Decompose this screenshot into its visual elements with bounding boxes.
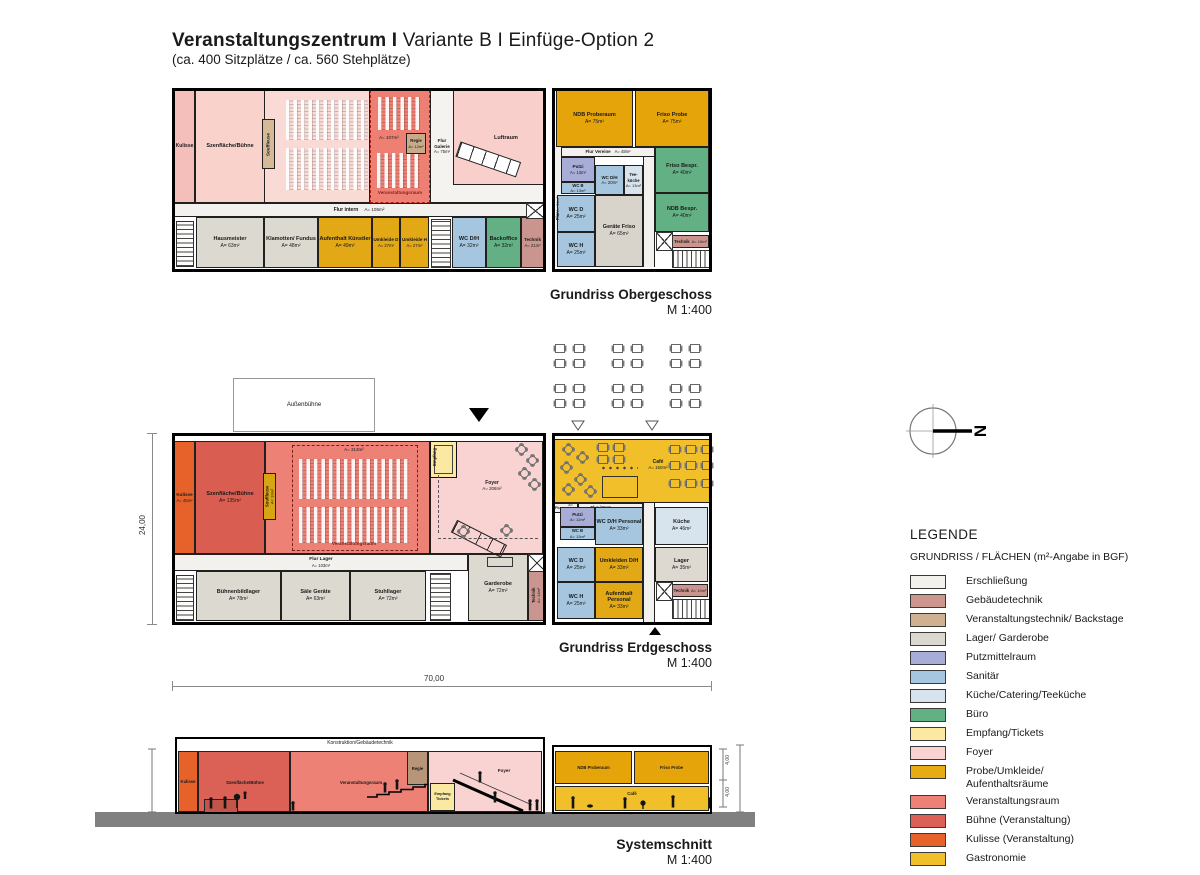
- legend-item-label: Gastronomie: [966, 852, 1026, 865]
- legend: LEGENDE GRUNDRISS / FLÄCHEN (m²-Angabe i…: [910, 527, 1180, 871]
- legend-item: Sanitär: [910, 670, 1180, 684]
- legend-item: Probe/Umkleide/ Aufenthaltsräume: [910, 765, 1180, 790]
- room-area: A= 12m²: [408, 144, 423, 149]
- og-vraum-area: A= 107m²: [372, 135, 406, 141]
- outdoor-table-icon: [555, 399, 565, 408]
- eg-room-kueche: Küche A= 46m²: [655, 507, 708, 545]
- cafe-table-icon: [702, 479, 712, 488]
- room-area: A= 75m²: [434, 149, 450, 154]
- schnitt-caption: Systemschnitt: [462, 836, 712, 852]
- room-label: Klamotten/ Fundus: [266, 236, 316, 243]
- og-annex-stair-icon: [672, 250, 711, 268]
- legend-item-label: Bühne (Veranstaltung): [966, 814, 1071, 827]
- room-label: WC H: [569, 243, 584, 250]
- outdoor-table-icon: [671, 384, 681, 393]
- room-label: Aufenthalt Personal: [596, 591, 642, 605]
- room-label: Flur Vereine: [585, 149, 610, 155]
- eg-room-garderobe: Garderobe A= 72m²: [468, 554, 528, 621]
- legend-item: Gebäudetechnik: [910, 594, 1180, 608]
- legend-swatch: [910, 814, 946, 828]
- room-area: A= 32m²: [494, 243, 513, 249]
- room-label: WC D: [569, 558, 584, 565]
- og-room-wc-h: WC H A= 25m²: [557, 232, 595, 267]
- room-area: A= 25m²: [566, 250, 585, 256]
- og-room-wc-b: WC B A= 13m²: [561, 182, 595, 194]
- outdoor-table-icon: [555, 359, 565, 368]
- og-annex-corridor-vertical: [643, 157, 655, 267]
- room-label: WC D/H: [459, 236, 479, 243]
- og-seat-rows-upper: [286, 100, 368, 140]
- room-label: Geräte Friso: [603, 224, 635, 231]
- legend-swatch: [910, 727, 946, 741]
- legend-swatch: [910, 833, 946, 847]
- room-area: A= 313m²: [344, 447, 364, 453]
- og-vraum-seats-lower: [377, 153, 420, 188]
- legend-items: ErschließungGebäudetechnikVeranstaltungs…: [910, 575, 1180, 866]
- legend-item-label: Probe/Umkleide/ Aufenthaltsräume: [966, 765, 1126, 790]
- room-area: A= 12m²: [570, 517, 585, 522]
- garderobe-counter-outline: [487, 557, 513, 567]
- round-table-icon: [502, 526, 511, 535]
- legend-item: Kulisse (Veranstaltung): [910, 833, 1180, 847]
- room-area: A= 27m²: [378, 243, 394, 248]
- og-room-souffleuse: Souffleuse: [262, 119, 275, 169]
- og-room-regie: Regie A= 12m²: [406, 133, 426, 154]
- og-room-backoffice: Backoffice A= 32m²: [486, 217, 521, 268]
- dim-line-height: [152, 433, 153, 625]
- room-label: Garderobe: [484, 581, 512, 588]
- og-room-ndb-bespr: NDB Bespr. A= 40m²: [655, 193, 709, 232]
- og-seat-rows-lower: [286, 148, 368, 190]
- eg-vraum-dashed-boundary: [292, 445, 418, 551]
- section-linework: [95, 735, 755, 830]
- room-label: Friso Probe: [657, 112, 688, 119]
- room-label: NDB Bespr.: [667, 206, 697, 213]
- og-room-friso-probe: Friso Probe A= 75m²: [635, 90, 709, 147]
- legend-swatch: [910, 594, 946, 608]
- og-annex-block: Flur A= 34m² NDB Proberaum A= 75m² Friso…: [552, 88, 712, 272]
- room-area: A= 40m²: [672, 170, 691, 176]
- room-area: A= 40m²: [672, 213, 691, 219]
- legend-item: Küche/Catering/Teeküche: [910, 689, 1180, 703]
- cafe-round-table-icon: [564, 445, 573, 454]
- room-label: Veranstaltungsraum: [378, 190, 422, 196]
- title-bold: Veranstaltungszentrum I: [172, 30, 397, 51]
- room-area: A= 65m²: [609, 231, 628, 237]
- cafe-table-icon: [614, 443, 624, 452]
- room-label: Flur Galerie: [430, 138, 454, 149]
- cafe-table-icon: [598, 443, 608, 452]
- room-label: Souffleuse: [266, 133, 272, 156]
- room-area: A= 25m²: [566, 601, 585, 607]
- architectural-drawing-sheet: Veranstaltungszentrum I Variante B I Ein…: [0, 0, 1200, 875]
- og-flur-vertical-label: Flur A= 34m²: [553, 184, 562, 232]
- og-room-kulisse: Kulisse: [174, 90, 195, 203]
- foyer-stair-flight: [453, 780, 523, 811]
- room-area: A= 10m²: [691, 588, 706, 593]
- page-title: Veranstaltungszentrum I Variante B I Ein…: [172, 30, 654, 52]
- room-label: Szenfläche/Bühne: [206, 143, 253, 150]
- title-regular: Variante B I Einfüge-Option 2: [397, 30, 654, 51]
- eg-room-aufenthalt-personal: Aufenthalt Personal A= 33m²: [595, 582, 643, 619]
- triangle-marker-icon: [468, 407, 490, 423]
- cafe-label: Café A= 150m²: [638, 459, 678, 471]
- room-area: A= 13m²: [570, 188, 585, 193]
- foyer-dashed-line-h: [438, 538, 538, 539]
- cafe-round-table-icon: [562, 463, 571, 472]
- eg-room-kulisse: Kulisse A= 45m²: [174, 441, 195, 554]
- eg-room-lager: Lager A= 35m²: [655, 547, 708, 582]
- legend-swatch: [910, 670, 946, 684]
- eg-caption: Grundriss Erdgeschoss: [462, 640, 712, 655]
- legend-item-label: Foyer: [966, 746, 993, 759]
- room-area: A= 48m²: [615, 149, 631, 154]
- legend-item: Veranstaltungsraum: [910, 795, 1180, 809]
- cafe-table-icon: [686, 445, 696, 454]
- room-area: A= 13m²: [570, 170, 586, 175]
- room-area: A= 49m²: [335, 243, 354, 249]
- cafe-round-table-icon: [578, 453, 587, 462]
- legend-item-label: Sanitär: [966, 670, 999, 683]
- legend-item-label: Empfang/Tickets: [966, 727, 1044, 740]
- legend-title: LEGENDE: [910, 527, 1180, 542]
- room-area: A= 72m²: [378, 596, 397, 602]
- room-label: Flur: [555, 212, 560, 220]
- outdoor-table-icon: [690, 359, 700, 368]
- room-label: Tee- küche: [625, 172, 642, 183]
- cafe-table-icon: [670, 445, 680, 454]
- eg-room-szene: Szenfläche/Bühne A= 135m²: [195, 441, 265, 554]
- og-room-aufenthalt-kuenstler: Aufenthalt Künstler A= 49m²: [318, 217, 372, 268]
- og-room-wc-d: WC D A= 25m²: [557, 195, 595, 232]
- legend-item-label: Büro: [966, 708, 988, 721]
- room-label: NDB Proberaum: [573, 112, 615, 119]
- outdoor-table-icon: [690, 344, 700, 353]
- legend-swatch: [910, 689, 946, 703]
- og-room-wc-dh: WC D/H A= 32m²: [452, 217, 486, 268]
- eg-main-block: Kulisse A= 45m² Szenfläche/Bühne A= 135m…: [172, 433, 546, 625]
- room-label: WC D: [569, 207, 584, 214]
- legend-swatch: [910, 632, 946, 646]
- eg-room-wc-d: WC D A= 25m²: [557, 547, 595, 582]
- cafe-table-icon: [598, 455, 608, 464]
- cafe-round-table-icon: [586, 487, 595, 496]
- og-vraum-seats-upper: [378, 97, 420, 130]
- legend-item: Veranstaltungstechnik/ Backstage: [910, 613, 1180, 627]
- og-room-geraete-friso: Geräte Friso A= 65m²: [595, 195, 643, 267]
- outdoor-table-icon: [671, 344, 681, 353]
- cafe-table-icon: [702, 445, 712, 454]
- legend-swatch: [910, 795, 946, 809]
- room-area: A= 14m²: [536, 588, 541, 603]
- legend-item-label: Gebäudetechnik: [966, 594, 1042, 607]
- legend-item: Büro: [910, 708, 1180, 722]
- outdoor-table-icon: [632, 359, 642, 368]
- room-area: A= 10m²: [692, 239, 707, 244]
- room-area: A= 48m²: [281, 243, 300, 249]
- legend-item-label: Kulisse (Veranstaltung): [966, 833, 1074, 846]
- dim-width-label: 70,00: [424, 674, 444, 683]
- room-area: A= 27m²: [407, 243, 423, 248]
- room-area: A= 13m²: [570, 534, 585, 539]
- dim-line-width: [172, 686, 712, 687]
- aussenbuehne-label: Außenbühne: [287, 402, 321, 408]
- outdoor-table-icon: [555, 344, 565, 353]
- outdoor-table-icon: [613, 399, 623, 408]
- og-room-umkleide-d: Umkleide D A= 27m²: [372, 217, 400, 268]
- room-area: A= 21m²: [525, 243, 541, 248]
- room-area: A= 150m²: [648, 465, 667, 471]
- cafe-table-icon: [670, 479, 680, 488]
- room-area: A= 10m²: [270, 489, 275, 504]
- legend-swatch: [910, 746, 946, 760]
- eg-room-empfang: Empfang: [430, 441, 457, 478]
- legend-item-label: Veranstaltungstechnik/ Backstage: [966, 613, 1124, 626]
- room-area: A= 46m²: [672, 526, 691, 532]
- room-area: A= 25m²: [566, 214, 585, 220]
- eg-room-wc-h: WC H A= 25m²: [557, 582, 595, 619]
- triangle-marker-up-icon: [648, 626, 662, 636]
- room-label: WC D/H Personal: [597, 519, 642, 526]
- outdoor-table-icon: [574, 344, 584, 353]
- eg-annex-block: Café A= 150m² Flur A= 40m² Flur intern A…: [552, 433, 712, 625]
- eg-room-stuhllager: Stuhllager A= 72m²: [350, 571, 426, 621]
- outdoor-table-icon: [574, 384, 584, 393]
- outdoor-table-icon: [671, 359, 681, 368]
- legend-item-label: Lager/ Garderobe: [966, 632, 1049, 645]
- cafe-round-table-icon: [564, 485, 573, 494]
- outdoor-table-icon: [613, 344, 623, 353]
- legend-item: Foyer: [910, 746, 1180, 760]
- cafe-tables: [552, 433, 712, 503]
- page-subtitle: (ca. 400 Sitzplätze / ca. 560 Stehplätze…: [172, 52, 411, 67]
- legend-item-label: Küche/Catering/Teeküche: [966, 689, 1086, 702]
- legend-item: Erschließung: [910, 575, 1180, 589]
- legend-swatch: [910, 708, 946, 722]
- room-label: Technik: [674, 588, 690, 593]
- room-area: A= 32m²: [459, 243, 478, 249]
- room-label: Friso Bespr.: [666, 163, 698, 170]
- og-room-friso-bespr: Friso Bespr. A= 40m²: [655, 147, 709, 193]
- eg-annex-stair-icon: [672, 599, 710, 619]
- legend-swatch: [910, 613, 946, 627]
- og-room-technik2: Technik A= 10m²: [672, 235, 709, 248]
- room-label: Empfang: [432, 448, 437, 466]
- eg-room-technik2: Technik A= 10m²: [672, 584, 708, 597]
- og-caption: Grundriss Obergeschoss: [462, 287, 712, 302]
- og-stair-mid-icon: [431, 219, 451, 268]
- eg-room-umkleiden: Umkleiden D/H A= 33m²: [595, 547, 643, 582]
- outdoor-table-icon: [555, 384, 565, 393]
- og-room-klamotten-fundus: Klamotten/ Fundus A= 48m²: [264, 217, 318, 268]
- cafe-table-icon: [686, 461, 696, 470]
- legend-item-label: Veranstaltungsraum: [966, 795, 1059, 808]
- dim-height-label: 24,00: [138, 515, 147, 535]
- outdoor-table-icon: [574, 359, 584, 368]
- room-area: A= 45m²: [177, 498, 193, 503]
- eg-room-putzi: Putzi A= 12m²: [560, 507, 595, 527]
- og-room-umkleide-h: Umkleide H A= 27m²: [400, 217, 429, 268]
- room-label: Kulisse: [176, 143, 194, 149]
- room-area: A= 25m²: [566, 565, 585, 571]
- room-label: Luftraum: [494, 135, 518, 142]
- room-area: A= 75m²: [585, 119, 604, 125]
- room-label: Backoffice: [490, 236, 518, 243]
- terrace-tables: [549, 344, 713, 424]
- legend-swatch: [910, 651, 946, 665]
- og-room-wc-dh2: WC D/H A= 20m²: [595, 165, 624, 195]
- og-stair-left-icon: [176, 221, 194, 267]
- legend-subtitle: GRUNDRISS / FLÄCHEN (m²-Angabe in BGF): [910, 551, 1180, 563]
- eg-vraum-label: Veranstaltungsraum: [292, 541, 416, 547]
- round-table-icon: [459, 527, 468, 536]
- eg-corridor-flur-lager: Flur Lager A= 103m²: [174, 554, 468, 571]
- people-silhouettes: [209, 771, 711, 810]
- og-caption-scale: M 1:400: [462, 303, 712, 317]
- legend-item-label: Putzmittelraum: [966, 651, 1036, 664]
- north-arrow-icon: N: [906, 404, 996, 458]
- cafe-round-table-icon: [576, 475, 585, 484]
- og-shaft-cross-icon: [526, 203, 545, 219]
- legend-item: Putzmittelraum: [910, 651, 1180, 665]
- eg-room-souffleuse: Souffleuse A= 10m²: [263, 473, 276, 520]
- room-label: Küche: [673, 519, 690, 526]
- round-table-icon: [528, 456, 537, 465]
- eg-room-wc-dh-personal: WC D/H Personal A= 33m²: [595, 507, 643, 545]
- eg-stair-mid-icon: [430, 573, 451, 621]
- cafe-table-icon: [686, 479, 696, 488]
- room-label: Hausmeister: [213, 236, 246, 243]
- og-room-ndb-proberaum: NDB Proberaum A= 75m²: [556, 90, 633, 147]
- room-label: Lager: [674, 558, 689, 565]
- legend-swatch: [910, 765, 946, 779]
- room-label: Umkleiden D/H: [600, 558, 639, 565]
- room-area: A= 105m²: [364, 207, 384, 213]
- triangle-outline-icon: [645, 420, 659, 431]
- room-area: A= 103m²: [312, 563, 330, 568]
- eg-annex-corridor-vertical: [643, 503, 655, 625]
- outdoor-table-icon: [632, 399, 642, 408]
- foyer-dashed-line-v: [438, 475, 439, 533]
- outdoor-table-icon: [671, 399, 681, 408]
- eg-annex-cross-icon: [656, 582, 673, 601]
- room-area: A= 78m²: [229, 596, 248, 602]
- room-label: Stuhllager: [375, 589, 402, 596]
- legend-item: Bühne (Veranstaltung): [910, 814, 1180, 828]
- outdoor-table-icon: [613, 384, 623, 393]
- room-label: Szenfläche/Bühne: [206, 491, 253, 498]
- eg-vraum-area: A= 313m²: [292, 447, 416, 453]
- og-corridor-flur-intern: Flur intern A= 105m²: [174, 203, 544, 217]
- eg-room-buehnenbildlager: Bühnenbildlager A= 78m²: [196, 571, 281, 621]
- dim-tick: [711, 681, 712, 691]
- og-room-teekueche: Tee- küche A= 13m²: [624, 165, 643, 195]
- og-main-block: Kulisse Szenfläche/Bühne Souffleuse A= 1…: [172, 88, 546, 272]
- eg-stair-left-icon: [176, 575, 194, 621]
- og-flur-galerie-label: Flur Galerie A= 75m²: [430, 138, 454, 155]
- outdoor-table-icon: [690, 384, 700, 393]
- og-corridor-flur-vereine: Flur Vereine A= 48m²: [561, 147, 655, 157]
- dim-tick: [147, 624, 157, 625]
- cafe-table-icon: [702, 461, 712, 470]
- room-area: A= 33m²: [609, 526, 628, 532]
- og-annex-cross-icon: [656, 232, 673, 251]
- section-drawing: Konstruktion/Gebäudetechnik Kulisse Szen…: [95, 735, 755, 830]
- round-table-icon: [517, 445, 526, 454]
- room-label: Flur intern: [334, 207, 359, 213]
- room-area: A= 20m²: [602, 180, 618, 185]
- cafe-table-icon: [614, 455, 624, 464]
- og-room-putzi: Putzi A= 13m²: [561, 157, 595, 182]
- eg-room-technik: Technik A= 14m²: [528, 570, 544, 621]
- room-label: Säle Geräte: [300, 589, 330, 596]
- room-area: A= 33m²: [609, 604, 628, 610]
- room-area: A= 72m²: [488, 588, 507, 594]
- legend-item: Empfang/Tickets: [910, 727, 1180, 741]
- outdoor-table-icon: [574, 399, 584, 408]
- eg-foyer-label: Foyer A= 208m²: [462, 480, 522, 492]
- legend-swatch: [910, 575, 946, 589]
- legend-item: Lager/ Garderobe: [910, 632, 1180, 646]
- room-label: Bühnenbildlager: [217, 589, 260, 596]
- eg-shaft-cross-icon: [528, 554, 546, 572]
- eg-room-wc-b: WC B A= 13m²: [560, 527, 595, 540]
- north-letter: N: [971, 425, 990, 437]
- room-area: A= 33m²: [609, 565, 628, 571]
- room-area: A= 135m²: [219, 498, 241, 504]
- round-table-icon: [520, 469, 529, 478]
- og-room-technik: Technik A= 21m²: [521, 217, 544, 268]
- triangle-outline-icon: [571, 420, 585, 431]
- outdoor-table-icon: [632, 384, 642, 393]
- og-room-hausmeister: Hausmeister A= 63m²: [196, 217, 264, 268]
- schnitt-caption-scale: M 1:400: [462, 853, 712, 867]
- og-vraum-label: Veranstaltungsraum: [370, 190, 430, 196]
- room-area: A= 63m²: [306, 596, 325, 602]
- room-area: A= 75m²: [662, 119, 681, 125]
- round-table-icon: [530, 480, 539, 489]
- room-area: A= 63m²: [220, 243, 239, 249]
- legend-item: Gastronomie: [910, 852, 1180, 866]
- room-label: Veranstaltungsraum: [332, 541, 376, 547]
- outdoor-table-icon: [632, 344, 642, 353]
- eg-caption-scale: M 1:400: [462, 656, 712, 670]
- legend-swatch: [910, 852, 946, 866]
- aussenbuehne-box: Außenbühne: [233, 378, 375, 432]
- outdoor-table-icon: [690, 399, 700, 408]
- outdoor-table-icon: [613, 359, 623, 368]
- room-area: A= 34m²: [555, 196, 560, 211]
- dim-tick: [172, 681, 173, 691]
- og-room-szene: Szenfläche/Bühne: [195, 90, 265, 203]
- room-label: Aufenthalt Künstler: [319, 236, 370, 243]
- eg-room-saele-geraete: Säle Geräte A= 63m²: [281, 571, 350, 621]
- legend-item-label: Erschließung: [966, 575, 1027, 588]
- room-label: Technik: [674, 239, 690, 244]
- room-area: A= 208m²: [482, 486, 501, 492]
- room-area: A= 107m²: [379, 135, 399, 141]
- dim-tick: [147, 433, 157, 434]
- room-area: A= 13m²: [626, 183, 641, 188]
- room-label: WC H: [569, 594, 584, 601]
- room-area: A= 35m²: [672, 565, 691, 571]
